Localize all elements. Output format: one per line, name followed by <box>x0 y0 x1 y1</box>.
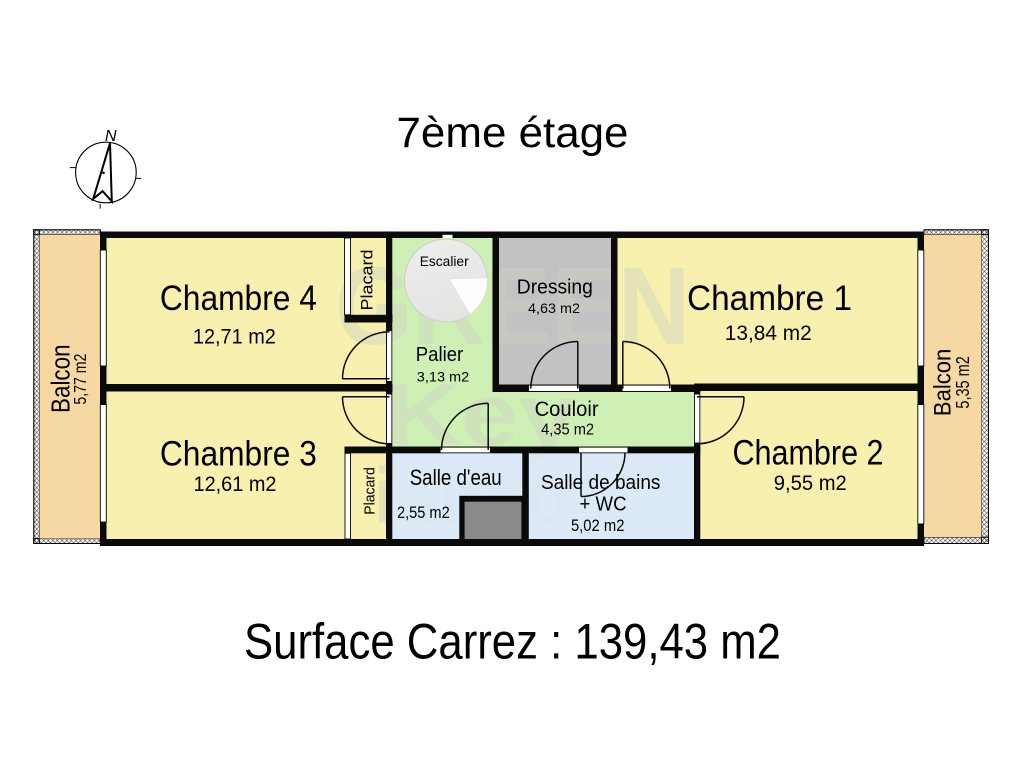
svg-text:Salle de bains: Salle de bains <box>541 471 661 494</box>
svg-text:Placard: Placard <box>362 467 378 515</box>
svg-text:3,13 m2: 3,13 m2 <box>417 369 470 385</box>
svg-text:5,02 m2: 5,02 m2 <box>571 516 625 535</box>
svg-text:2,55 m2: 2,55 m2 <box>397 503 450 522</box>
svg-text:Placard: Placard <box>358 250 377 311</box>
svg-text:+ WC: + WC <box>580 492 627 515</box>
svg-text:Couloir: Couloir <box>535 398 599 421</box>
svg-text:4,35 m2: 4,35 m2 <box>541 421 594 438</box>
svg-text:5,35 m2: 5,35 m2 <box>953 356 973 408</box>
svg-text:7ème étage: 7ème étage <box>397 109 629 157</box>
svg-text:Chambre 2: Chambre 2 <box>733 434 884 473</box>
svg-text:Chambre 3: Chambre 3 <box>160 435 317 474</box>
svg-text:Chambre 4: Chambre 4 <box>160 279 317 318</box>
svg-text:Chambre 1: Chambre 1 <box>687 279 852 318</box>
svg-text:4,63 m2: 4,63 m2 <box>528 301 580 316</box>
svg-text:Palier: Palier <box>416 344 464 366</box>
svg-text:Salle d'eau: Salle d'eau <box>410 465 502 490</box>
svg-text:13,84 m2: 13,84 m2 <box>725 321 812 345</box>
svg-text:9,55 m2: 9,55 m2 <box>774 471 847 495</box>
svg-text:Surface Carrez : 139,43 m2: Surface Carrez : 139,43 m2 <box>244 614 781 670</box>
svg-text:12,71 m2: 12,71 m2 <box>193 324 276 348</box>
svg-text:N: N <box>105 128 117 145</box>
svg-text:Dressing: Dressing <box>517 277 593 299</box>
svg-text:12,61 m2: 12,61 m2 <box>194 472 277 496</box>
svg-text:5,77 m2: 5,77 m2 <box>70 354 90 405</box>
svg-text:Escalier: Escalier <box>420 253 469 269</box>
